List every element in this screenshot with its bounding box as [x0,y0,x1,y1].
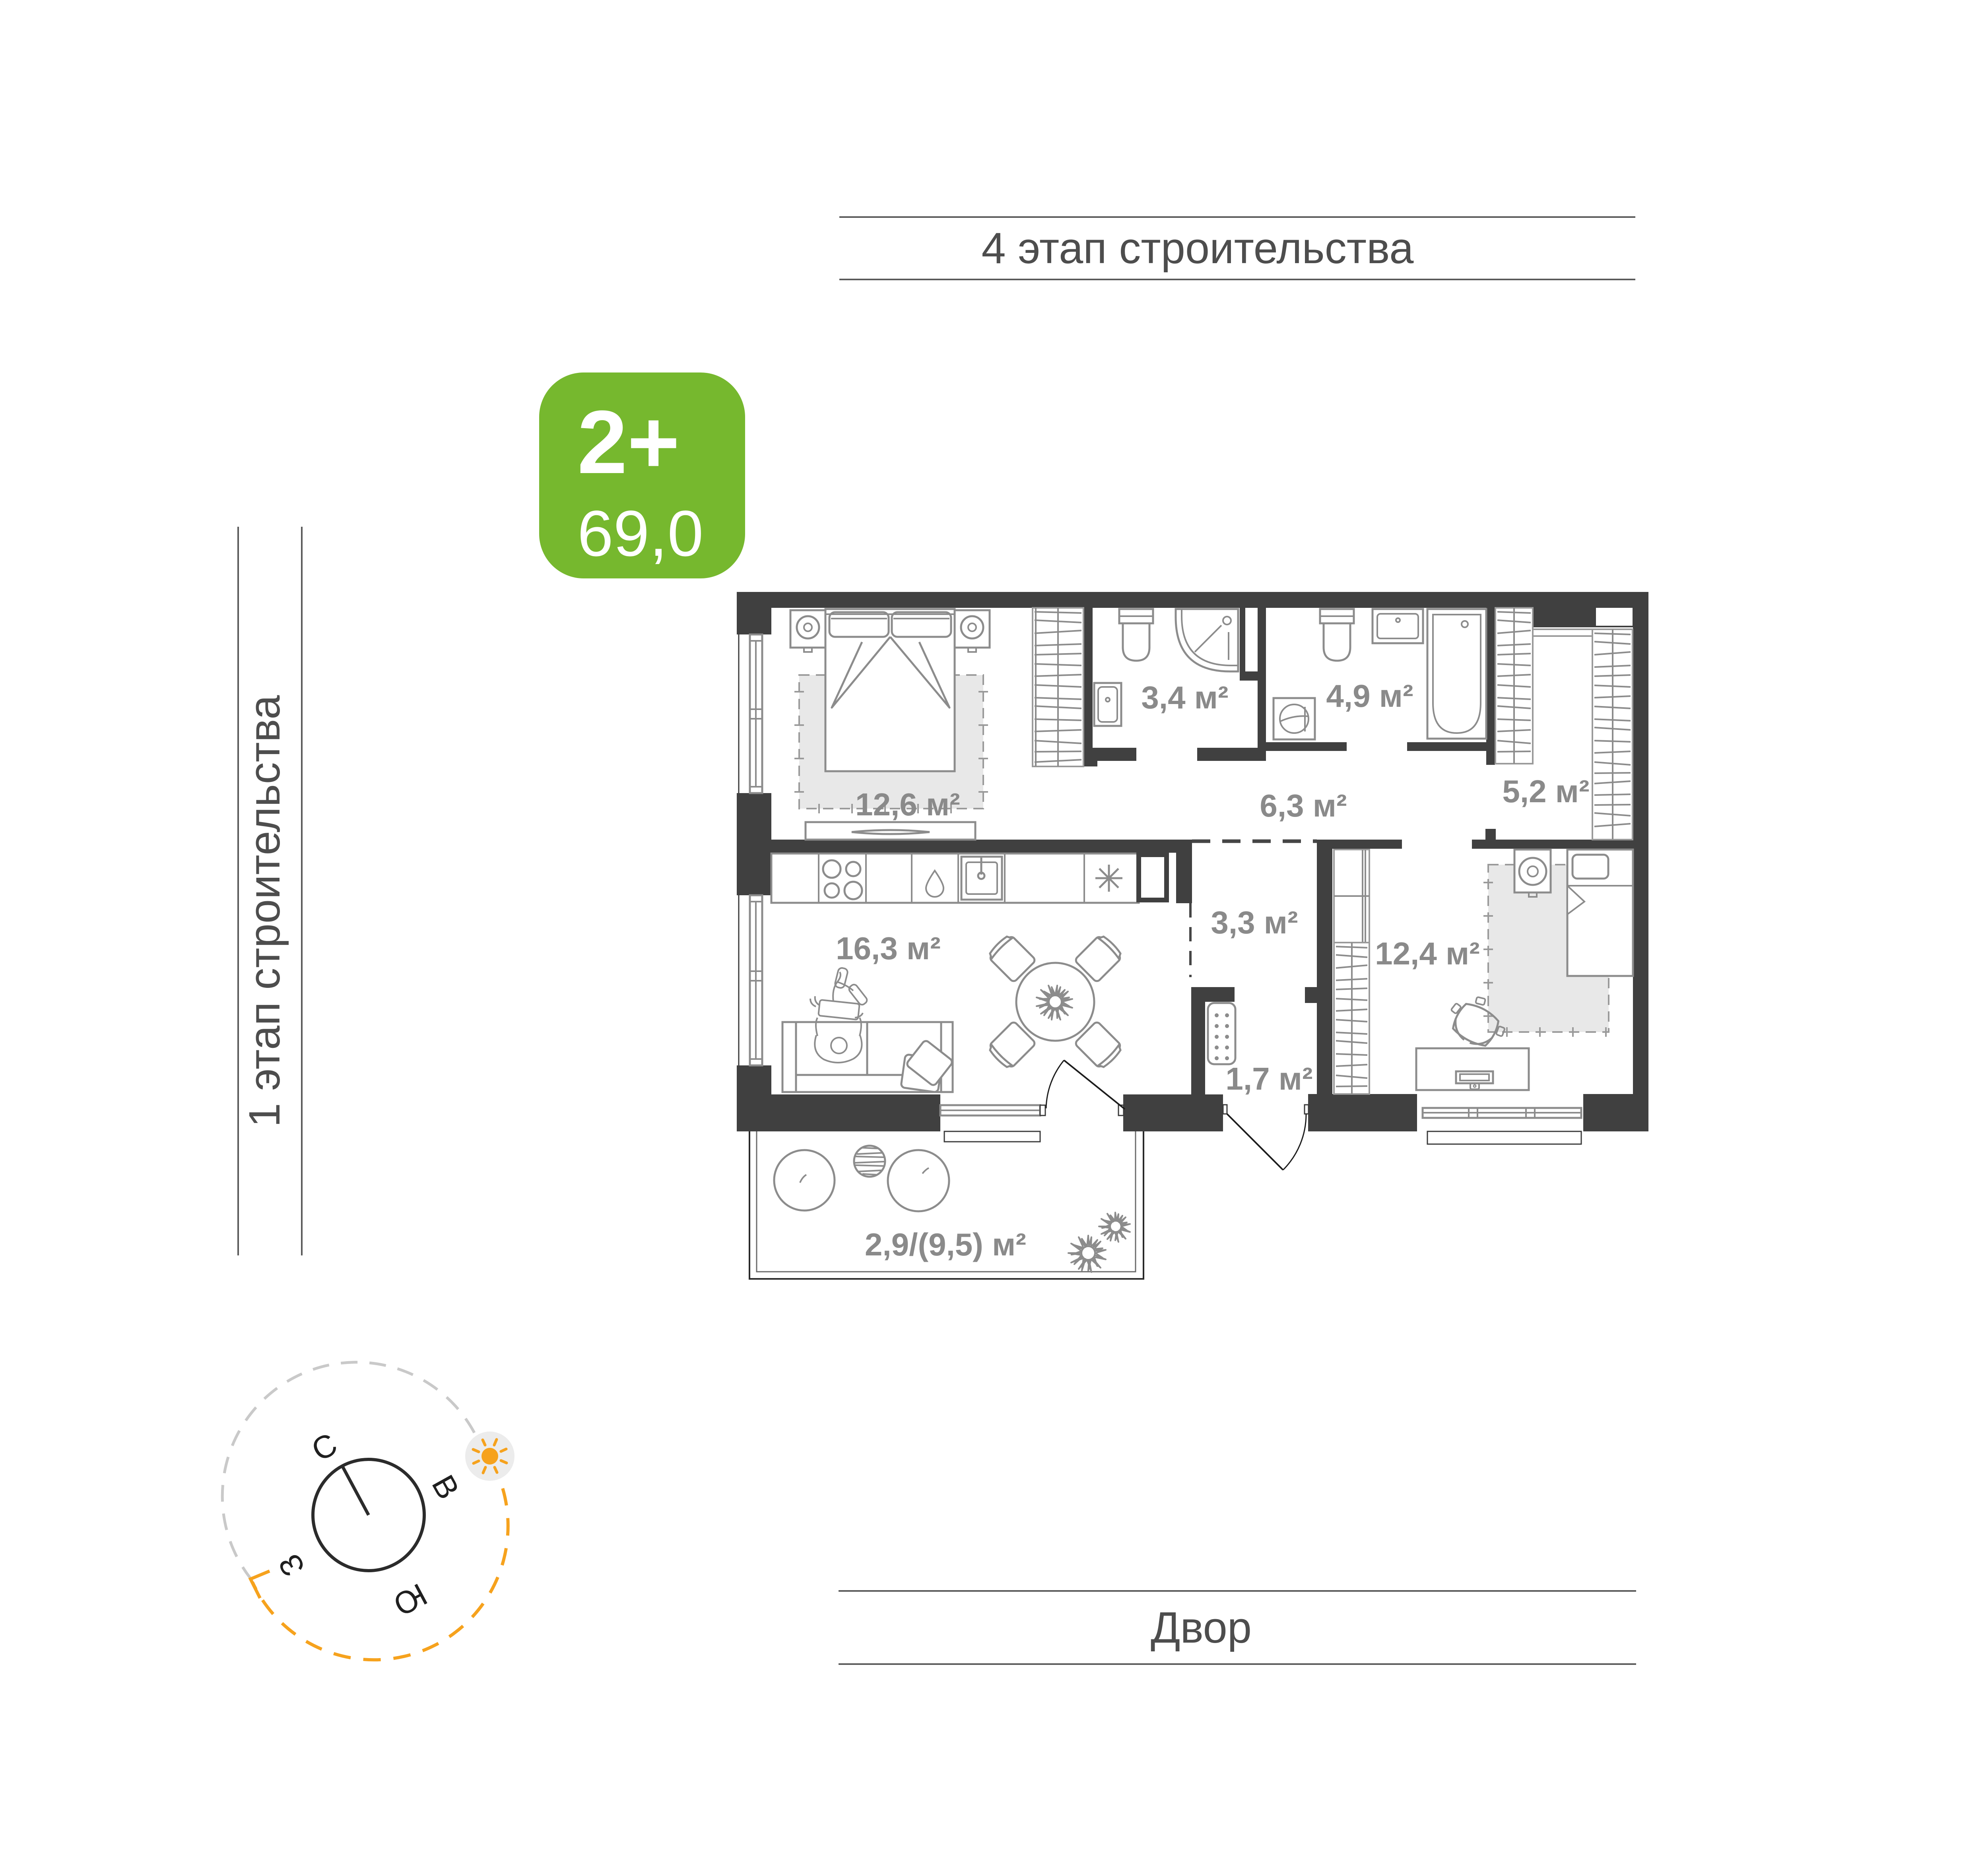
svg-text:69,0: 69,0 [577,497,703,570]
svg-text:16,3 м²: 16,3 м² [836,931,941,966]
svg-text:1 этап строительства: 1 этап строительства [240,695,289,1127]
svg-text:6,3 м²: 6,3 м² [1260,788,1347,823]
svg-text:3,4 м²: 3,4 м² [1141,680,1228,715]
svg-text:Двор: Двор [1151,1603,1252,1652]
svg-text:2,9/(9,5) м²: 2,9/(9,5) м² [865,1227,1026,1262]
svg-text:4 этап строительства: 4 этап строительства [981,224,1414,273]
svg-text:2+: 2+ [577,392,680,492]
svg-text:12,6 м²: 12,6 м² [855,787,960,822]
svg-text:1,7 м²: 1,7 м² [1225,1061,1312,1096]
svg-text:5,2 м²: 5,2 м² [1502,774,1589,809]
svg-text:4,9 м²: 4,9 м² [1326,678,1413,714]
svg-text:12,4 м²: 12,4 м² [1375,936,1480,971]
svg-text:3,3 м²: 3,3 м² [1211,905,1298,940]
